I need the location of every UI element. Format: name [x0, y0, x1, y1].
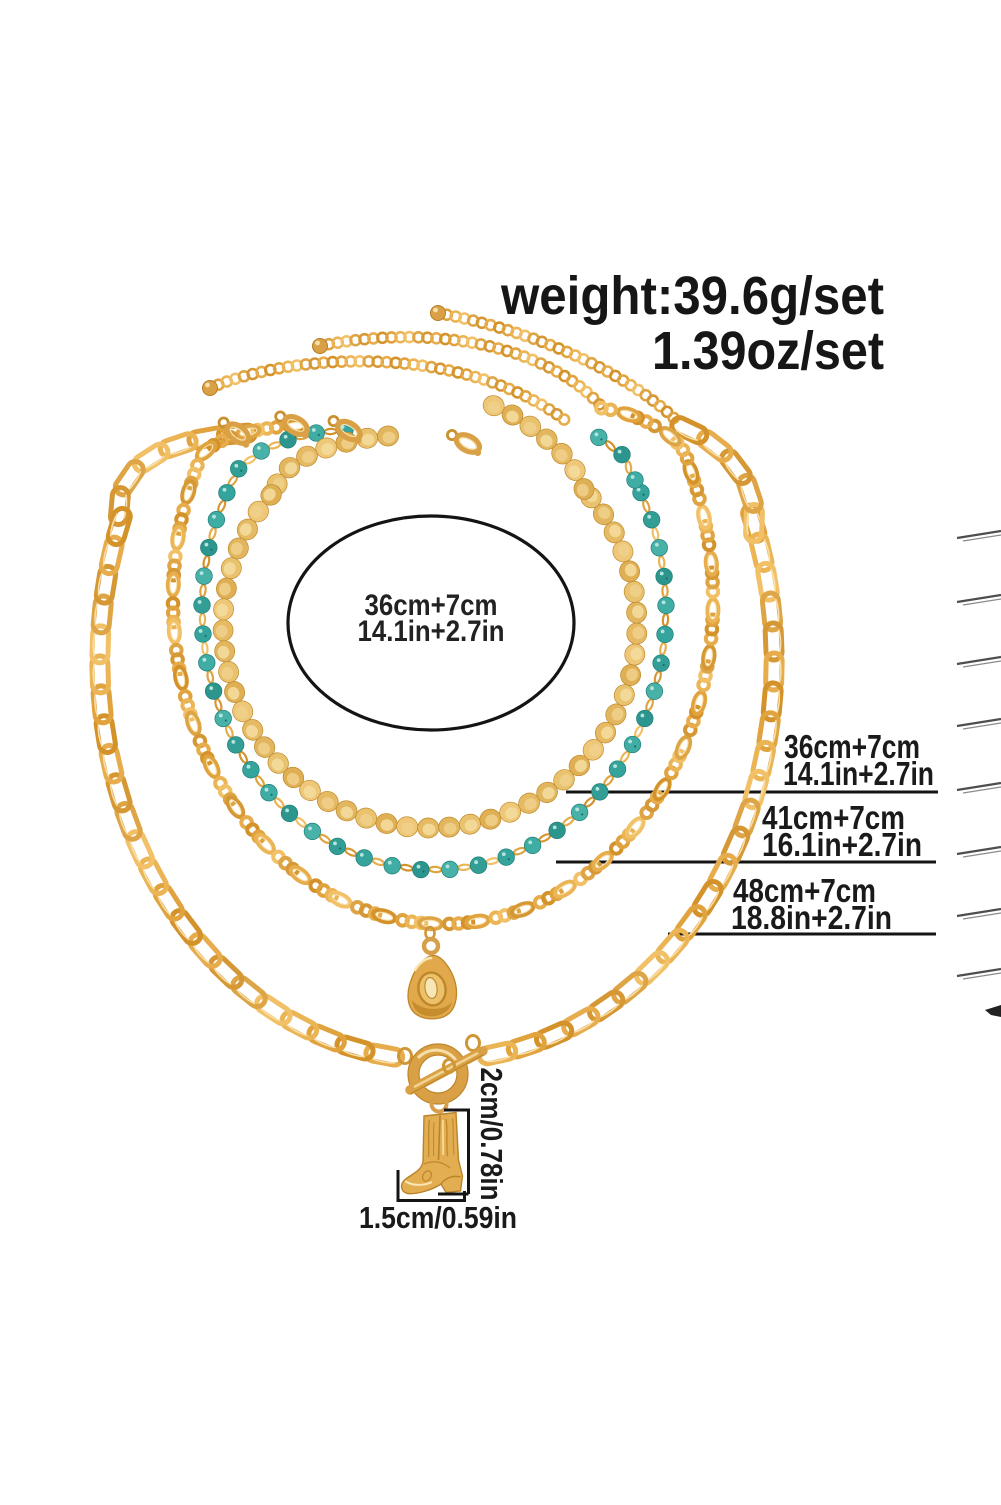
svg-text:2cm/0.78in: 2cm/0.78in [474, 1068, 509, 1201]
svg-text:1.5cm/0.59in: 1.5cm/0.59in [359, 1200, 517, 1235]
svg-text:14.1in+2.7in: 14.1in+2.7in [783, 755, 934, 792]
svg-text:1.39oz/set: 1.39oz/set [652, 321, 884, 381]
svg-text:weight:39.6g/set: weight:39.6g/set [500, 266, 884, 326]
svg-text:16.1in+2.7in: 16.1in+2.7in [762, 826, 922, 863]
svg-text:14.1in+2.7in: 14.1in+2.7in [358, 615, 505, 648]
svg-text:18.8in+2.7in: 18.8in+2.7in [731, 899, 892, 936]
